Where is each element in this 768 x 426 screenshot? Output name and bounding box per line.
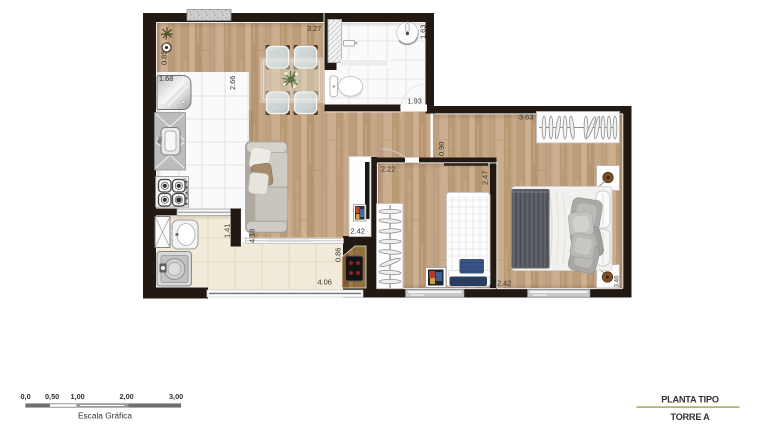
svg-text:3.46: 3.46 [614, 275, 621, 288]
svg-text:1.41: 1.41 [223, 224, 232, 238]
svg-text:2.47: 2.47 [481, 171, 490, 185]
svg-text:0,0: 0,0 [21, 392, 31, 401]
svg-text:3,00: 3,00 [169, 392, 183, 401]
svg-text:TORRE A: TORRE A [670, 412, 710, 422]
svg-text:4.06: 4.06 [318, 278, 332, 287]
svg-text:2.66: 2.66 [228, 76, 237, 90]
svg-text:3.63: 3.63 [519, 113, 533, 122]
svg-text:PLANTA TIPO: PLANTA TIPO [661, 395, 719, 405]
svg-text:0.86: 0.86 [334, 248, 343, 262]
svg-text:1.63: 1.63 [419, 25, 428, 39]
svg-text:2.42: 2.42 [351, 227, 365, 236]
svg-text:1.93: 1.93 [408, 97, 422, 106]
svg-text:1,00: 1,00 [71, 392, 85, 401]
svg-text:2.42: 2.42 [497, 279, 511, 288]
svg-text:0,50: 0,50 [45, 392, 59, 401]
svg-text:4.18: 4.18 [248, 229, 257, 243]
svg-text:2,00: 2,00 [120, 392, 134, 401]
svg-text:1.68: 1.68 [159, 74, 173, 83]
svg-text:3.27: 3.27 [307, 24, 321, 33]
svg-text:Escala Gráfica: Escala Gráfica [78, 411, 132, 421]
svg-text:2.22: 2.22 [381, 165, 395, 174]
svg-text:0.85: 0.85 [160, 51, 169, 65]
svg-text:0.90: 0.90 [437, 142, 446, 156]
